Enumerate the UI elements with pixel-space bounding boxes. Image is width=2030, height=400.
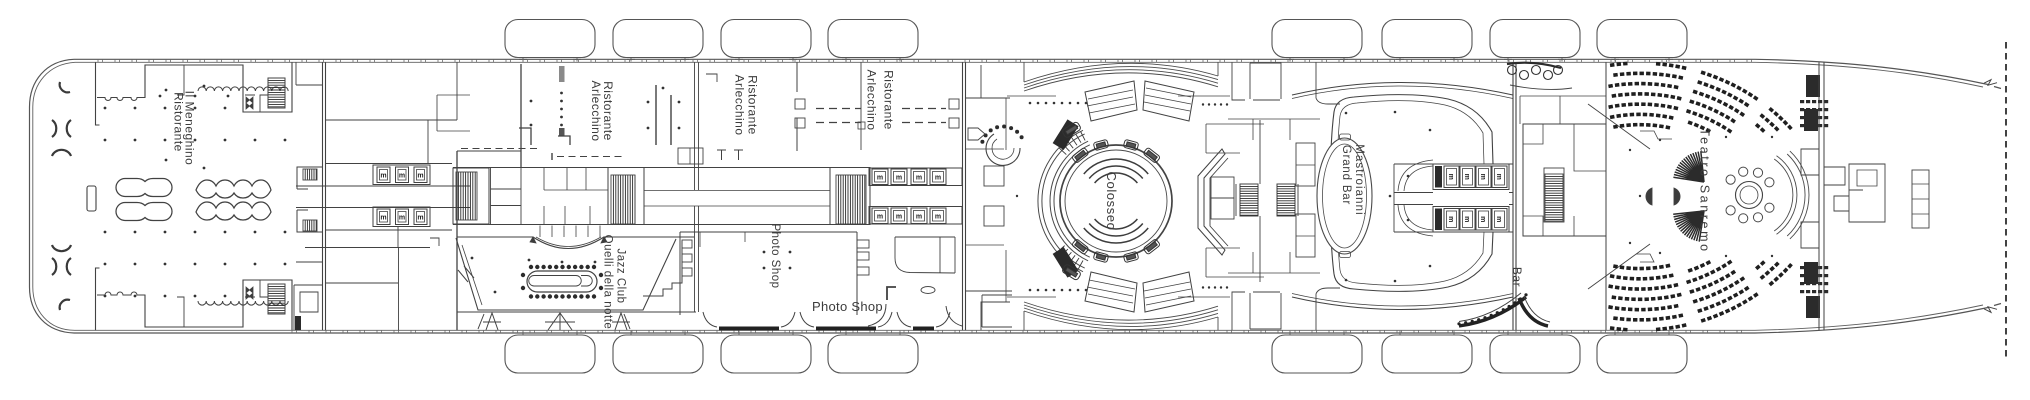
svg-text:Teatro Sanremo: Teatro Sanremo xyxy=(1698,128,1712,253)
svg-text:Quelli della notte: Quelli della notte xyxy=(602,235,614,330)
svg-text:m: m xyxy=(1479,216,1486,222)
svg-text:Arlecchino: Arlecchino xyxy=(589,80,603,141)
svg-text:m: m xyxy=(1463,174,1470,180)
svg-text:Arlecchino: Arlecchino xyxy=(733,74,747,135)
svg-text:m: m xyxy=(399,172,405,179)
svg-text:Ristorante: Ristorante xyxy=(882,70,896,130)
svg-text:m: m xyxy=(935,174,941,181)
svg-text:m: m xyxy=(916,174,922,181)
svg-text:m: m xyxy=(935,213,941,220)
svg-text:m: m xyxy=(1495,216,1502,222)
svg-text:Photo Shop: Photo Shop xyxy=(812,299,883,314)
svg-text:m: m xyxy=(896,174,902,181)
svg-text:m: m xyxy=(417,214,423,221)
svg-text:m: m xyxy=(877,213,883,220)
svg-text:m: m xyxy=(896,213,902,220)
svg-text:Il Meneghino: Il Meneghino xyxy=(183,91,197,166)
svg-text:m: m xyxy=(1447,216,1454,222)
svg-text:Jazz Club: Jazz Club xyxy=(615,249,627,304)
svg-text:m: m xyxy=(916,213,922,220)
svg-text:m: m xyxy=(1495,174,1502,180)
svg-text:Bar: Bar xyxy=(1510,267,1524,287)
svg-text:Photo Shop: Photo Shop xyxy=(769,223,781,288)
svg-text:m: m xyxy=(380,214,386,221)
svg-text:Grand Bar: Grand Bar xyxy=(1340,145,1352,205)
svg-text:Ristorante: Ristorante xyxy=(746,75,760,135)
svg-text:m: m xyxy=(1447,174,1454,180)
svg-text:m: m xyxy=(399,214,405,221)
svg-text:Colosseo: Colosseo xyxy=(1104,172,1119,231)
svg-text:Arlecchino: Arlecchino xyxy=(865,69,879,130)
svg-text:Mastroianni: Mastroianni xyxy=(1353,144,1365,216)
svg-text:m: m xyxy=(877,174,883,181)
svg-text:m: m xyxy=(380,172,386,179)
svg-text:m: m xyxy=(1463,216,1470,222)
svg-text:m: m xyxy=(417,172,423,179)
svg-text:m: m xyxy=(1479,174,1486,180)
